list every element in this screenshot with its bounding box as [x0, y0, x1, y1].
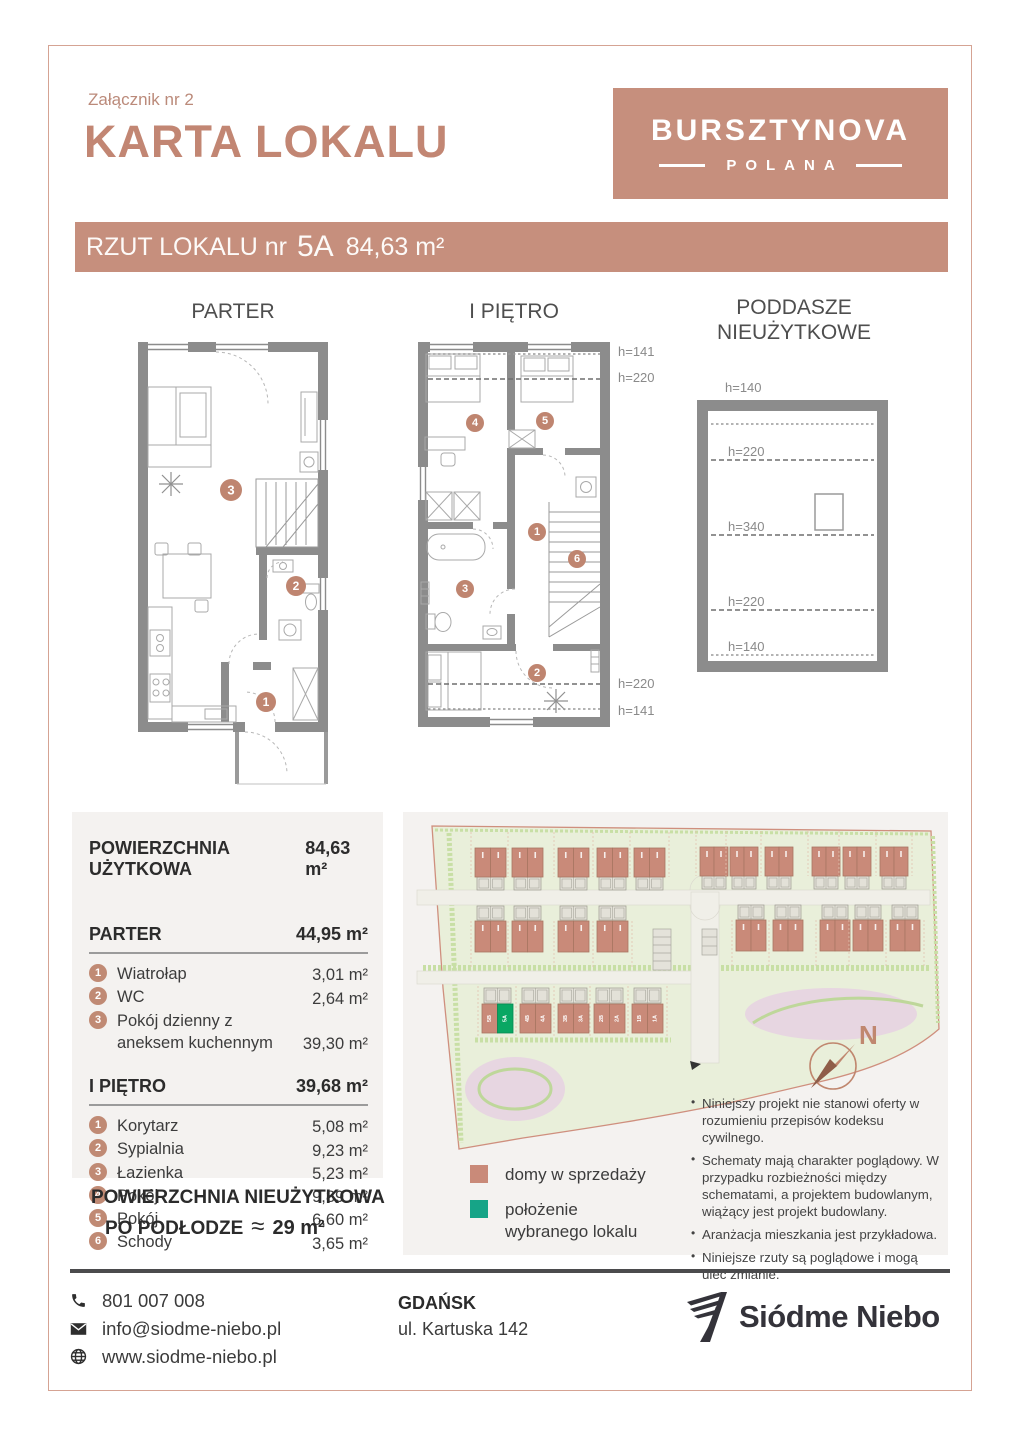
svg-text:5: 5	[542, 415, 548, 427]
plan-title-parter: PARTER	[133, 300, 333, 325]
company-brand: Siódme Niebo	[683, 1290, 940, 1344]
svg-text:2B: 2B	[599, 1015, 605, 1022]
svg-text:1B: 1B	[637, 1015, 643, 1022]
parter-porch	[237, 732, 326, 784]
unused-area-label-1: POWIERZCHNIA NIEUŻYTKOWA	[91, 1186, 401, 1210]
plan-title-poddasze: PODDASZE NIEUŻYTKOWE	[695, 296, 893, 346]
property-card-page: Załącznik nr 2 KARTA LOKALU BURSZTYNOVA …	[0, 0, 1019, 1440]
website-url: www.siodme-niebo.pl	[102, 1346, 277, 1368]
envelope-icon	[70, 1322, 87, 1336]
logo-subtitle: POLANA	[717, 157, 843, 174]
parter-plant-icon	[159, 472, 183, 496]
site-map-panel: 5B5A4B4A3B3A2B2A1B1A N domy w sprzedaży …	[403, 812, 948, 1255]
svg-text:4: 4	[472, 417, 479, 429]
svg-text:h=141: h=141	[618, 344, 655, 359]
company-name: Siódme Niebo	[739, 1299, 940, 1335]
disclaimer-item: Schematy mają charakter poglądowy. W prz…	[691, 1152, 941, 1220]
total-area-label: POWIERZCHNIA UŻYTKOWA	[89, 838, 305, 880]
svg-text:2: 2	[534, 667, 540, 679]
banner-unit-area: 84,63 m²	[346, 233, 445, 262]
area-item: 2 Sypialnia 9,23 m²	[89, 1138, 368, 1160]
area-item: 3 Pokój dzienny z aneksem kuchennym 39,3…	[89, 1010, 368, 1055]
siodme-niebo-logo-icon	[683, 1290, 729, 1344]
svg-text:h=220: h=220	[728, 594, 765, 609]
contact-block: 801 007 008 info@siodme-niebo.pl www.sio…	[70, 1288, 281, 1369]
legend-swatch-green	[470, 1200, 488, 1218]
area-table-panel: POWIERZCHNIA UŻYTKOWA 84,63 m² PARTER 44…	[72, 812, 383, 1178]
phone-number: 801 007 008	[102, 1290, 205, 1312]
legend-item-selected-unit: położenie wybranego lokalu	[470, 1199, 655, 1243]
address-block: GDAŃSK ul. Kartuska 142	[398, 1290, 528, 1342]
svg-text:h=140: h=140	[728, 639, 765, 654]
parter-stairs	[256, 479, 318, 547]
floor-plan-parter: 3 2 1	[133, 332, 333, 794]
svg-text:3B: 3B	[563, 1015, 569, 1022]
logo-subtitle-row: POLANA	[659, 157, 901, 174]
svg-text:3: 3	[462, 583, 468, 595]
attachment-label: Załącznik nr 2	[88, 90, 194, 110]
svg-text:h=141: h=141	[618, 703, 655, 718]
banner-unit-number: 5A	[297, 230, 334, 264]
footer-divider	[70, 1269, 950, 1273]
legend-swatch-salmon	[470, 1165, 488, 1183]
disclaimer-list: Niniejszy projekt nie stanowi oferty w r…	[691, 1095, 941, 1289]
svg-text:5A: 5A	[502, 1015, 508, 1022]
parter-section: PARTER 44,95 m² 1 Wiatrołap 3,01 m² 2 WC…	[89, 924, 368, 1054]
unit-banner: RZUT LOKALU nr 5A 84,63 m²	[75, 222, 948, 272]
unused-area-block: POWIERZCHNIA NIEUŻYTKOWA PO PODŁODZE ≈ 2…	[91, 1186, 401, 1242]
svg-text:h=220: h=220	[618, 370, 655, 385]
svg-text:1: 1	[534, 526, 540, 538]
legend-item-for-sale: domy w sprzedaży	[470, 1164, 655, 1186]
page-title: KARTA LOKALU	[84, 116, 448, 168]
area-item: 3 Łazienka 5,23 m²	[89, 1162, 368, 1184]
parter-windows	[148, 345, 326, 730]
map-legend: domy w sprzedaży położenie wybranego lok…	[470, 1164, 655, 1243]
unused-area-value: 29 m²	[272, 1216, 324, 1241]
email-address: info@siodme-niebo.pl	[102, 1318, 281, 1340]
floor-plan-pietro: 4 5 1 6 3 2 h=141 h=220 h=220 h=141	[413, 332, 663, 737]
total-area-row: POWIERZCHNIA UŻYTKOWA 84,63 m²	[89, 838, 368, 880]
total-area-value: 84,63 m²	[305, 838, 368, 880]
approx-symbol: ≈	[251, 1212, 264, 1242]
area-item: 2 WC 2,64 m²	[89, 986, 368, 1008]
svg-text:h=340: h=340	[728, 519, 765, 534]
city-name: GDAŃSK	[398, 1290, 528, 1316]
svg-text:2: 2	[293, 579, 300, 593]
website-row: www.siodme-niebo.pl	[70, 1344, 281, 1369]
email-row: info@siodme-niebo.pl	[70, 1316, 281, 1341]
banner-prefix: RZUT LOKALU nr	[86, 233, 287, 262]
disclaimer-item: Niniejsze rzuty są poglądowe i mogą ulec…	[691, 1249, 941, 1283]
disclaimer-item: Aranżacja mieszkania jest przykładowa.	[691, 1226, 941, 1243]
street-address: ul. Kartuska 142	[398, 1316, 528, 1342]
svg-text:2A: 2A	[614, 1015, 620, 1022]
pietro-stairs	[549, 502, 600, 637]
phone-icon	[70, 1292, 87, 1309]
parter-section-value: 44,95 m²	[296, 924, 368, 945]
pietro-section-label: I PIĘTRO	[89, 1076, 166, 1097]
svg-text:3A: 3A	[578, 1015, 584, 1022]
logo-name: BURSZTYNOVA	[651, 114, 910, 148]
logo-dash-left	[659, 164, 705, 167]
svg-text:6: 6	[574, 553, 580, 565]
section-rule	[89, 952, 368, 954]
section-rule	[89, 1104, 368, 1106]
svg-text:1A: 1A	[652, 1015, 658, 1022]
plan-title-pietro: I PIĘTRO	[413, 300, 615, 325]
svg-text:h=220: h=220	[728, 444, 765, 459]
development-logo: BURSZTYNOVA POLANA	[613, 88, 948, 199]
poddasze-skylight	[815, 494, 843, 530]
area-item: 1 Wiatrołap 3,01 m²	[89, 963, 368, 985]
pietro-section-value: 39,68 m²	[296, 1076, 368, 1097]
pietro-height-labels: h=141 h=220 h=220 h=141	[618, 344, 655, 718]
phone-row: 801 007 008	[70, 1288, 281, 1313]
svg-text:h=220: h=220	[618, 676, 655, 691]
svg-text:1: 1	[263, 695, 270, 709]
svg-text:4A: 4A	[540, 1015, 546, 1022]
north-label: N	[859, 1020, 878, 1050]
disclaimer-item: Niniejszy projekt nie stanowi oferty w r…	[691, 1095, 941, 1146]
area-item: 1 Korytarz 5,08 m²	[89, 1115, 368, 1137]
parter-section-label: PARTER	[89, 924, 162, 945]
floor-plan-poddasze: h=140 h=220 h=340 h=220 h=140	[695, 372, 895, 682]
poddasze-height-above: h=140	[725, 380, 762, 395]
svg-text:4B: 4B	[525, 1015, 531, 1022]
logo-dash-right	[856, 164, 902, 167]
globe-icon	[70, 1348, 87, 1365]
unused-area-label-2: PO PODŁODZE	[105, 1217, 243, 1241]
svg-text:5B: 5B	[487, 1015, 493, 1022]
svg-text:3: 3	[227, 483, 234, 498]
